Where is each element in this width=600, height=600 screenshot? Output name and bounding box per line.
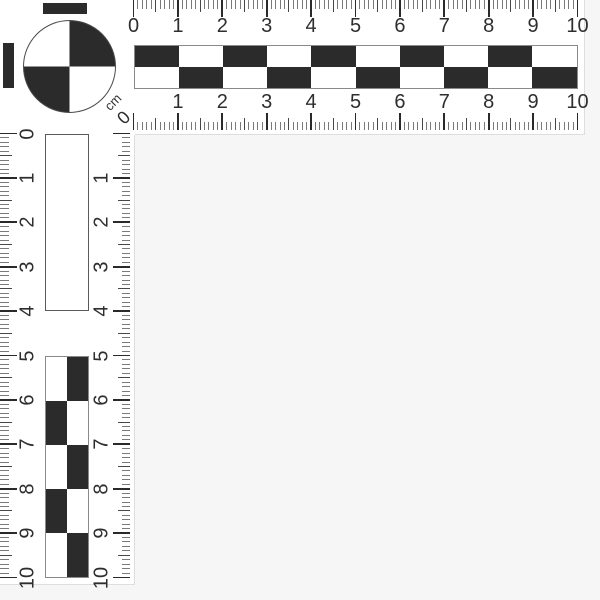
tick (118, 510, 130, 511)
tick (113, 355, 130, 357)
tick (182, 122, 183, 131)
tick (0, 439, 9, 440)
tick (297, 0, 298, 9)
tick (391, 122, 392, 131)
tick (541, 122, 542, 131)
tick (0, 306, 9, 307)
tick (262, 0, 263, 9)
tick (0, 221, 17, 223)
tick (113, 221, 130, 223)
tick (164, 122, 165, 131)
tick (113, 532, 130, 534)
tick (195, 122, 196, 131)
tick (346, 0, 347, 9)
tick (151, 122, 152, 131)
tick (113, 177, 130, 179)
tick (266, 113, 268, 130)
tick (479, 122, 480, 131)
tick (122, 364, 131, 365)
tick (0, 164, 9, 165)
tick (122, 164, 131, 165)
tick (122, 439, 131, 440)
checker-cell (311, 46, 355, 67)
tick (0, 506, 9, 507)
tick (386, 122, 387, 131)
tick (324, 0, 325, 9)
tick (488, 113, 490, 130)
ruler-number: 3 (261, 91, 272, 114)
tick (122, 430, 131, 431)
tick (122, 275, 131, 276)
checker-cell (46, 357, 67, 401)
tick (122, 226, 131, 227)
tick (137, 0, 138, 9)
tick (377, 0, 378, 12)
tick (217, 122, 218, 131)
tick (435, 122, 436, 131)
tick (0, 395, 9, 396)
ruler-number: 3 (91, 261, 114, 272)
tick (113, 310, 130, 312)
tick (271, 0, 272, 9)
tick (122, 160, 131, 161)
tick (422, 0, 423, 12)
quadrant-circle-target (23, 20, 116, 113)
ruler-number: 7 (439, 15, 450, 38)
tick (122, 373, 131, 374)
tick (280, 122, 281, 131)
tick (0, 497, 9, 498)
tick (470, 122, 471, 131)
tick (122, 493, 131, 494)
tick (113, 488, 130, 490)
tick (113, 399, 130, 401)
tick (0, 413, 9, 414)
tick (497, 0, 498, 9)
tick (122, 382, 131, 383)
tick (0, 333, 12, 334)
tick (0, 488, 17, 490)
tick (0, 448, 9, 449)
tick (122, 391, 131, 392)
tick (213, 122, 214, 131)
tick (122, 182, 131, 183)
tick (0, 528, 9, 529)
checker-cell (400, 46, 444, 67)
tick (0, 204, 9, 205)
ruler-number: 6 (17, 394, 40, 405)
checker-cell (488, 46, 532, 67)
tick (122, 191, 131, 192)
tick (122, 302, 131, 303)
tick (328, 122, 329, 131)
tick (0, 555, 12, 556)
tick (573, 0, 574, 9)
tick (0, 280, 9, 281)
tick (457, 122, 458, 131)
tick (122, 408, 131, 409)
tick (0, 217, 9, 218)
tick (377, 118, 378, 130)
ruler-number: 10 (566, 15, 588, 38)
tick (528, 122, 529, 131)
left-edge-reference-block (3, 43, 14, 88)
tick (0, 302, 9, 303)
tick (319, 122, 320, 131)
tick (244, 118, 245, 130)
ruler-number: 4 (17, 306, 40, 317)
tick (0, 186, 9, 187)
tick (302, 0, 303, 9)
tick (164, 0, 165, 9)
tick (0, 457, 9, 458)
tick (395, 122, 396, 131)
tick (122, 280, 131, 281)
tick (122, 213, 131, 214)
checker-cell (46, 489, 67, 533)
ruler-number: 2 (17, 217, 40, 228)
tick (118, 155, 130, 156)
tick (0, 453, 9, 454)
tick (537, 122, 538, 131)
tick (515, 122, 516, 131)
tick (462, 122, 463, 131)
tick (0, 364, 9, 365)
tick (122, 368, 131, 369)
tick (0, 470, 9, 471)
tick (0, 484, 9, 485)
tick (0, 142, 9, 143)
tick (399, 113, 401, 130)
ruler-number: 2 (91, 217, 114, 228)
tick (160, 122, 161, 131)
tick (0, 200, 12, 201)
tick (0, 151, 9, 152)
tick (122, 186, 131, 187)
tick (417, 122, 418, 131)
tick (364, 122, 365, 131)
tick (0, 146, 9, 147)
tick (528, 0, 529, 9)
checker-cell (223, 67, 267, 88)
tick (122, 386, 131, 387)
tick (284, 122, 285, 131)
tick (0, 568, 9, 569)
ruler-number: 1 (17, 172, 40, 183)
tick (430, 122, 431, 131)
tick (391, 0, 392, 9)
tick (122, 497, 131, 498)
tick (0, 466, 12, 467)
ruler-number: 1 (172, 91, 183, 114)
tick (122, 541, 131, 542)
checker-cell (356, 46, 400, 67)
vertical-checkerboard (45, 356, 89, 578)
tick (118, 200, 130, 201)
tick (146, 122, 147, 131)
tick (122, 257, 131, 258)
tick (0, 310, 17, 312)
tick (122, 550, 131, 551)
checker-cell (46, 445, 67, 489)
tick (122, 306, 131, 307)
checker-cell (356, 67, 400, 88)
tick (422, 118, 423, 130)
tick (240, 0, 241, 9)
tick (0, 515, 9, 516)
tick (546, 122, 547, 131)
tick (142, 122, 143, 131)
tick (118, 422, 130, 423)
checker-cell (67, 401, 88, 445)
tick (382, 0, 383, 9)
tick (0, 133, 17, 135)
ruler-number: 5 (91, 350, 114, 361)
tick (426, 122, 427, 131)
tick (122, 479, 131, 480)
ruler-number: 8 (483, 91, 494, 114)
tick (173, 122, 174, 131)
checker-cell (311, 67, 355, 88)
ruler-number: 0 (128, 15, 139, 38)
tick (448, 0, 449, 9)
tick (510, 0, 511, 12)
checker-cell (46, 533, 67, 577)
tick (0, 173, 9, 174)
tick (113, 133, 130, 135)
tick (564, 122, 565, 131)
tick (275, 122, 276, 131)
tick (0, 573, 9, 574)
tick (200, 118, 201, 130)
tick (122, 351, 131, 352)
tick (122, 337, 131, 338)
tick (0, 288, 12, 289)
ruler-number: 4 (91, 306, 114, 317)
tick (0, 417, 9, 418)
tick (182, 0, 183, 9)
tick (0, 475, 9, 476)
tick (122, 248, 131, 249)
tick (453, 0, 454, 9)
ruler-number: 4 (306, 15, 317, 38)
tick (122, 502, 131, 503)
tick (137, 122, 138, 131)
tick (443, 113, 445, 130)
tick (413, 0, 414, 9)
tick (0, 293, 9, 294)
tick (502, 0, 503, 9)
tick (315, 122, 316, 131)
ruler-number: 10 (566, 91, 588, 114)
tick (226, 0, 227, 9)
tick (0, 399, 17, 401)
tick (200, 0, 201, 12)
tick (122, 169, 131, 170)
tick (470, 0, 471, 9)
tick (568, 0, 569, 9)
tick (404, 0, 405, 9)
tick (479, 0, 480, 9)
tick (0, 244, 12, 245)
tick (208, 0, 209, 9)
ruler-number: 2 (217, 15, 228, 38)
tick (475, 0, 476, 9)
ruler-number: 0 (17, 128, 40, 139)
tick (118, 244, 130, 245)
tick (373, 122, 374, 131)
checker-cell (67, 445, 88, 489)
tick (275, 0, 276, 9)
tick (306, 122, 307, 131)
tick (439, 0, 440, 9)
ruler-number: 6 (394, 91, 405, 114)
tick (0, 577, 17, 579)
tick (0, 524, 9, 525)
tick (493, 0, 494, 9)
tick (355, 113, 357, 130)
ruler-number: 4 (306, 91, 317, 114)
tick (122, 448, 131, 449)
tick (122, 315, 131, 316)
tick (0, 160, 9, 161)
tick (118, 377, 130, 378)
tick (0, 231, 9, 232)
tick (417, 0, 418, 9)
tick (537, 0, 538, 9)
tick (288, 0, 289, 12)
tick (240, 122, 241, 131)
tick (439, 122, 440, 131)
tick (351, 122, 352, 131)
tick (0, 386, 9, 387)
tick (173, 0, 174, 9)
tick (559, 122, 560, 131)
tick (0, 155, 12, 156)
tick (213, 0, 214, 9)
checker-cell (179, 46, 223, 67)
tick (280, 0, 281, 9)
tick (541, 0, 542, 9)
tick (0, 137, 9, 138)
tick (430, 0, 431, 9)
tick (310, 113, 312, 130)
tick (204, 0, 205, 9)
tick (122, 457, 131, 458)
tick (0, 510, 12, 511)
tick (0, 426, 9, 427)
ruler-number: 1 (172, 15, 183, 38)
tick (226, 122, 227, 131)
tick (0, 191, 9, 192)
tick (0, 355, 17, 357)
tick (0, 208, 9, 209)
tick (155, 0, 156, 12)
tick (204, 122, 205, 131)
tick (0, 422, 12, 423)
photo-scale-image: 012345678910 12345678910 012345678910 12… (0, 0, 600, 600)
tick (122, 262, 131, 263)
tick (217, 0, 218, 9)
tick (118, 288, 130, 289)
tick (453, 122, 454, 131)
tick (122, 240, 131, 241)
tick (0, 248, 9, 249)
tick (122, 208, 131, 209)
tick (395, 0, 396, 9)
tick (337, 0, 338, 9)
tick (271, 122, 272, 131)
tick (0, 337, 9, 338)
ruler-number: 9 (528, 15, 539, 38)
checker-cell (179, 67, 223, 88)
tick (555, 118, 556, 130)
tick (122, 293, 131, 294)
tick (435, 0, 436, 9)
tick (151, 0, 152, 9)
tick (169, 0, 170, 9)
tick (122, 235, 131, 236)
tick (0, 351, 9, 352)
checker-cell (400, 67, 444, 88)
tick (550, 0, 551, 9)
tick (502, 122, 503, 131)
checker-cell (46, 401, 67, 445)
ruler-number: 9 (91, 528, 114, 539)
tick (122, 413, 131, 414)
ruler-number: 8 (91, 483, 114, 494)
tick (0, 240, 9, 241)
tick (122, 462, 131, 463)
tick (0, 253, 9, 254)
tick (346, 122, 347, 131)
tick (0, 546, 9, 547)
tick (484, 122, 485, 131)
tick (122, 417, 131, 418)
checker-cell (532, 67, 576, 88)
tick (122, 297, 131, 298)
tick (122, 253, 131, 254)
tick (328, 0, 329, 9)
checker-cell (135, 46, 179, 67)
tick (386, 0, 387, 9)
tick (122, 217, 131, 218)
tick (0, 564, 9, 565)
ruler-number: 2 (217, 91, 228, 114)
tick (559, 0, 560, 9)
tick (122, 475, 131, 476)
tick (333, 0, 334, 12)
tick (0, 479, 9, 480)
tick (155, 118, 156, 130)
ruler-number: 6 (91, 394, 114, 405)
tick (293, 0, 294, 9)
checker-cell (267, 46, 311, 67)
tick (284, 0, 285, 9)
checker-cell (488, 67, 532, 88)
tick (0, 462, 9, 463)
tick (359, 122, 360, 131)
tick (122, 359, 131, 360)
tick (160, 0, 161, 9)
tick (0, 319, 9, 320)
tick (0, 532, 17, 534)
tick (169, 122, 170, 131)
tick (306, 0, 307, 9)
tick (122, 395, 131, 396)
tick (0, 195, 9, 196)
tick (337, 122, 338, 131)
